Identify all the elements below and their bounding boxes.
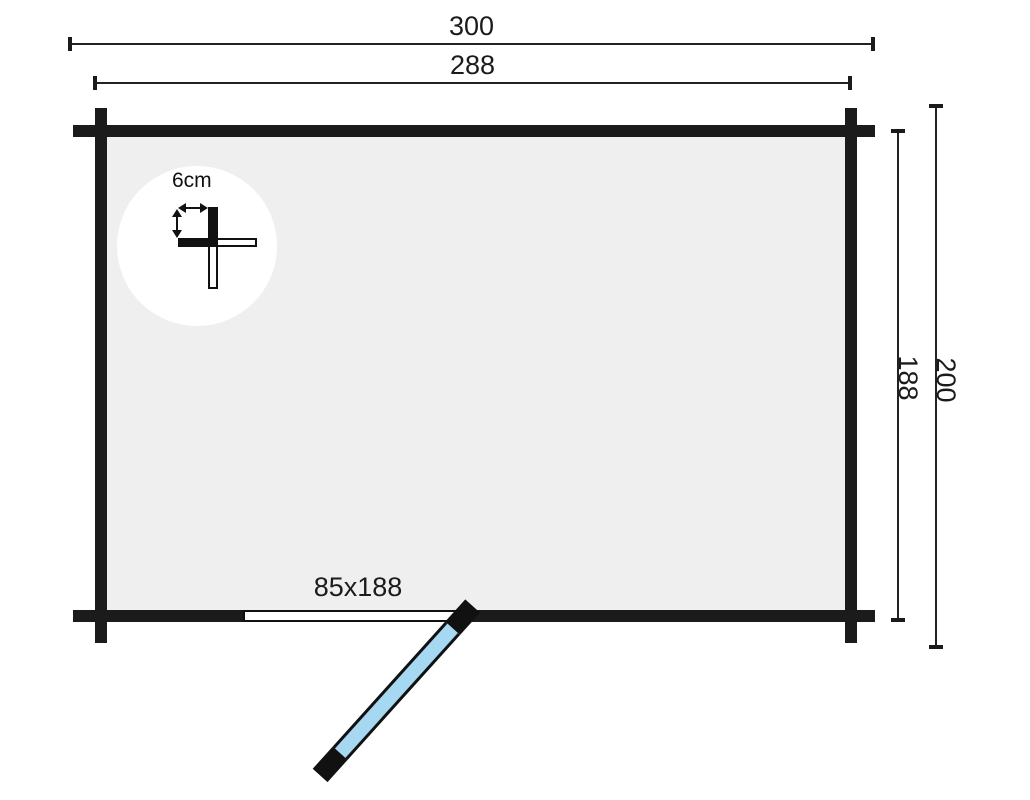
door-panel [333, 622, 460, 760]
detail-log-horizontal-solid [178, 238, 215, 247]
dimension-tick [891, 618, 905, 622]
wall-thickness-label: 6cm [172, 170, 212, 191]
overall-depth-label: 200 [932, 348, 960, 412]
dimension-tick [929, 645, 943, 649]
arrowhead-up-icon [172, 209, 182, 217]
dimension-line-overall-width: 300 [70, 43, 873, 45]
dimension-tick [871, 37, 875, 51]
dimension-tick [929, 104, 943, 108]
arrowhead-right-icon [200, 203, 208, 213]
floor-plan-diagram: 300 288 188 200 85x188 6cm [0, 0, 1030, 800]
door-size-label: 85x188 [314, 574, 403, 601]
detail-log-horizontal-outline [213, 238, 257, 247]
wall-top [73, 125, 875, 137]
dimension-tick [891, 129, 905, 133]
door-leaf [313, 599, 480, 782]
dimension-tick [93, 76, 97, 90]
frame-width-label: 288 [450, 52, 495, 79]
door-opening [243, 610, 472, 622]
wall-bottom-left-segment [73, 610, 243, 622]
dimension-tick [848, 76, 852, 90]
wall-bottom-right-segment [472, 610, 875, 622]
dimension-line-frame-width: 288 [95, 82, 850, 84]
wall-left [95, 108, 107, 643]
arrowhead-down-icon [172, 230, 182, 238]
frame-depth-label: 188 [894, 346, 922, 410]
wall-right [845, 108, 857, 643]
detail-log-vertical-outline [208, 245, 218, 289]
dimension-tick [68, 37, 72, 51]
overall-width-label: 300 [449, 13, 494, 40]
